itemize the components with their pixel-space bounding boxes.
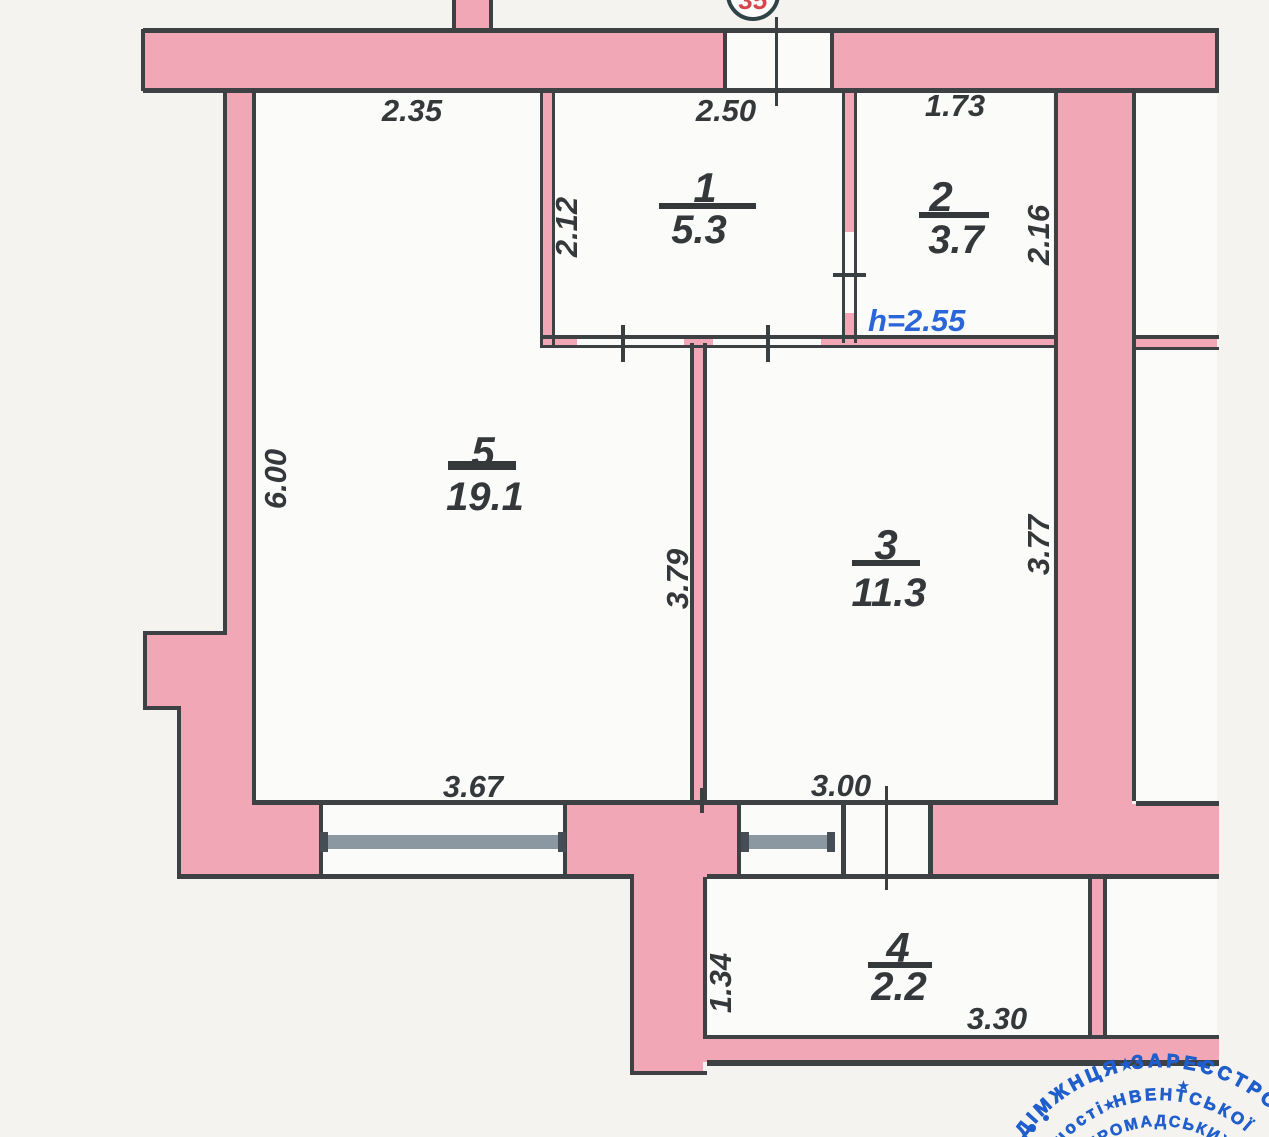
svg-text:3.79: 3.79 [660, 548, 695, 609]
svg-text:6.00: 6.00 [258, 449, 293, 509]
svg-text:3.67: 3.67 [443, 769, 505, 804]
svg-text:2.12: 2.12 [549, 197, 584, 258]
svg-text:5.3: 5.3 [671, 208, 727, 252]
svg-text:2.2: 2.2 [870, 965, 927, 1009]
svg-text:٭: ٭ [1177, 1075, 1190, 1097]
svg-text:19.1: 19.1 [446, 475, 524, 519]
svg-text:3.30: 3.30 [967, 1001, 1027, 1036]
svg-text:2.35: 2.35 [381, 93, 443, 128]
svg-text:1.34: 1.34 [703, 953, 738, 1013]
svg-text:3.00: 3.00 [811, 768, 871, 803]
svg-text:2.16: 2.16 [1021, 204, 1056, 266]
svg-text:h=2.55: h=2.55 [868, 303, 966, 338]
svg-text:35: 35 [739, 0, 768, 15]
svg-text:3.7: 3.7 [928, 218, 985, 262]
svg-text:3.77: 3.77 [1021, 513, 1056, 575]
svg-text:11.3: 11.3 [852, 571, 927, 615]
svg-text:1.73: 1.73 [925, 88, 985, 123]
svg-text:2.50: 2.50 [695, 93, 756, 128]
